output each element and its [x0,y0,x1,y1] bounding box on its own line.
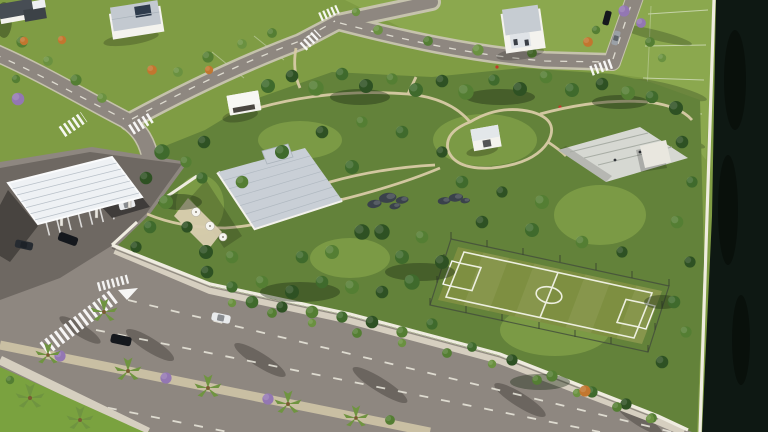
orange-tree [20,37,28,45]
orange-tree [583,37,593,47]
jacaranda-tree [636,18,646,28]
aerial-render [0,0,768,432]
jacaranda-tree [618,5,629,16]
jacaranda-tree [12,93,25,106]
jacaranda-bush [262,393,273,404]
skater-dot [614,159,617,162]
jacaranda-bush [54,350,65,361]
orange-tree [147,65,157,75]
jacaranda-bush [160,372,171,383]
orange-tree [579,385,590,396]
cube-door [482,139,491,147]
median-bush [385,415,395,425]
orange-tree [58,36,66,44]
street-sign-dot [495,65,498,68]
orange-tree [205,66,213,74]
